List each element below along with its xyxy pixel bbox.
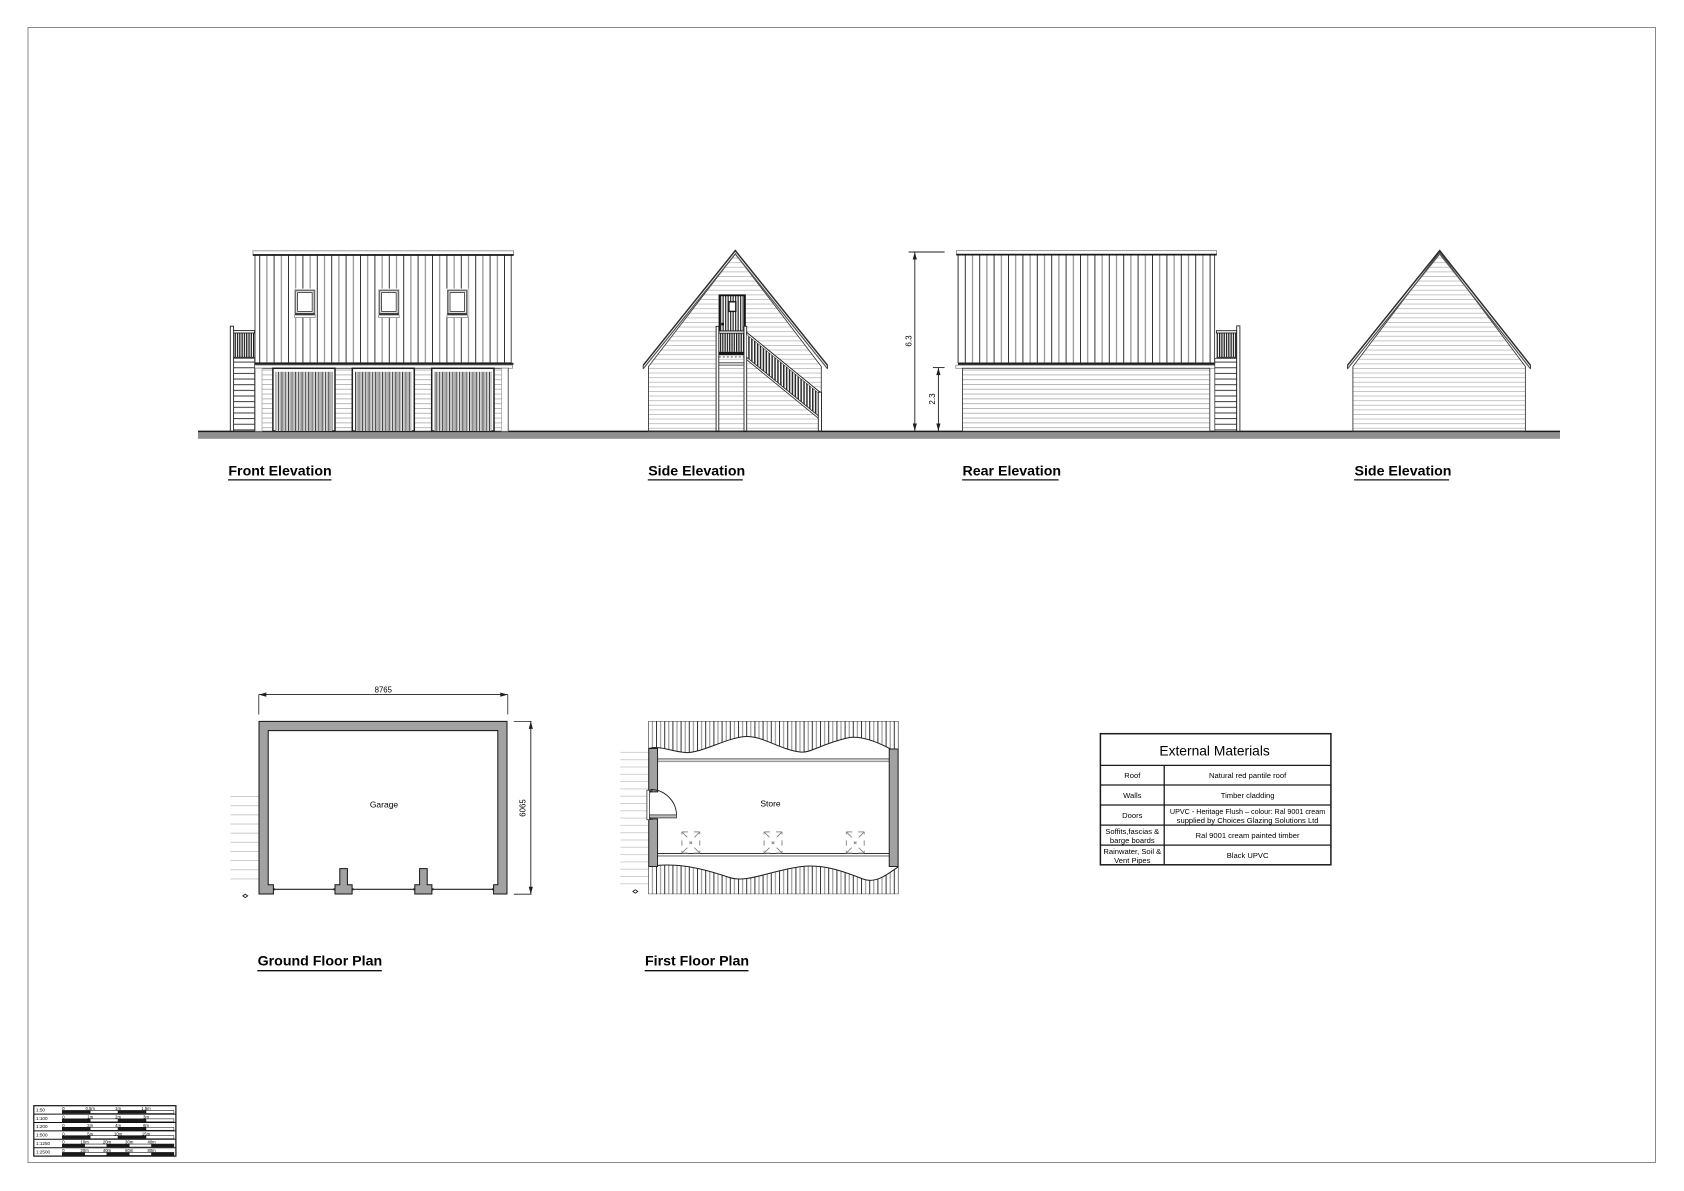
svg-text:Side Elevation: Side Elevation [1355,463,1452,479]
svg-text:First Floor Plan: First Floor Plan [645,953,749,969]
svg-text:1:2500: 1:2500 [36,1149,50,1154]
svg-text:Ground Floor Plan: Ground Floor Plan [258,953,383,969]
svg-text:1m: 1m [87,1115,93,1120]
svg-text:1m: 1m [115,1106,121,1111]
svg-text:Garage: Garage [370,799,399,809]
svg-text:8765: 8765 [375,685,393,694]
svg-text:1:200: 1:200 [36,1124,48,1129]
svg-text:10m: 10m [81,1140,90,1145]
svg-text:40m: 40m [103,1148,112,1153]
svg-text:Walls: Walls [1123,791,1141,800]
svg-text:2.3: 2.3 [928,393,937,405]
svg-text:Timber cladding: Timber cladding [1221,791,1275,800]
svg-text:1:1250: 1:1250 [36,1141,50,1146]
svg-text:Ral 9001 cream painted timber: Ral 9001 cream painted timber [1196,831,1300,840]
svg-text:Store: Store [760,798,781,808]
svg-text:Roof: Roof [1124,771,1141,780]
svg-text:1:100: 1:100 [36,1116,48,1121]
svg-text:Front Elevation: Front Elevation [228,463,331,479]
svg-text:6.3: 6.3 [905,335,914,347]
svg-text:6065: 6065 [519,799,528,817]
svg-text:30m: 30m [125,1140,134,1145]
svg-text:40m: 40m [148,1140,157,1145]
svg-text:2m: 2m [115,1115,121,1120]
svg-text:Natural red pantile roof: Natural red pantile roof [1209,771,1287,780]
svg-text:barge boards: barge boards [1110,836,1155,845]
svg-text:2m: 2m [87,1123,93,1128]
svg-text:80m: 80m [148,1148,157,1153]
svg-text:Doors: Doors [1122,811,1142,820]
svg-text:0.5m: 0.5m [86,1106,96,1111]
svg-text:1:50: 1:50 [36,1107,45,1112]
svg-text:External Materials: External Materials [1159,744,1270,759]
svg-text:15m: 15m [142,1131,151,1136]
svg-text:Rear Elevation: Rear Elevation [963,463,1062,479]
svg-text:5m: 5m [87,1131,93,1136]
svg-text:10m: 10m [114,1131,123,1136]
svg-text:3m: 3m [143,1115,149,1120]
svg-text:20m: 20m [81,1148,90,1153]
svg-text:1:500: 1:500 [36,1133,48,1138]
svg-text:supplied by Choices Glazing So: supplied by Choices Glazing Solutions Lt… [1177,816,1319,825]
svg-text:Vent Pipes: Vent Pipes [1114,856,1151,865]
svg-text:20m: 20m [103,1140,112,1145]
svg-text:Side Elevation: Side Elevation [648,463,745,479]
svg-text:4m: 4m [115,1123,121,1128]
svg-text:60m: 60m [125,1148,134,1153]
svg-text:1.5m: 1.5m [141,1106,151,1111]
svg-text:6m: 6m [143,1123,149,1128]
svg-text:Black UPVC: Black UPVC [1227,851,1269,860]
